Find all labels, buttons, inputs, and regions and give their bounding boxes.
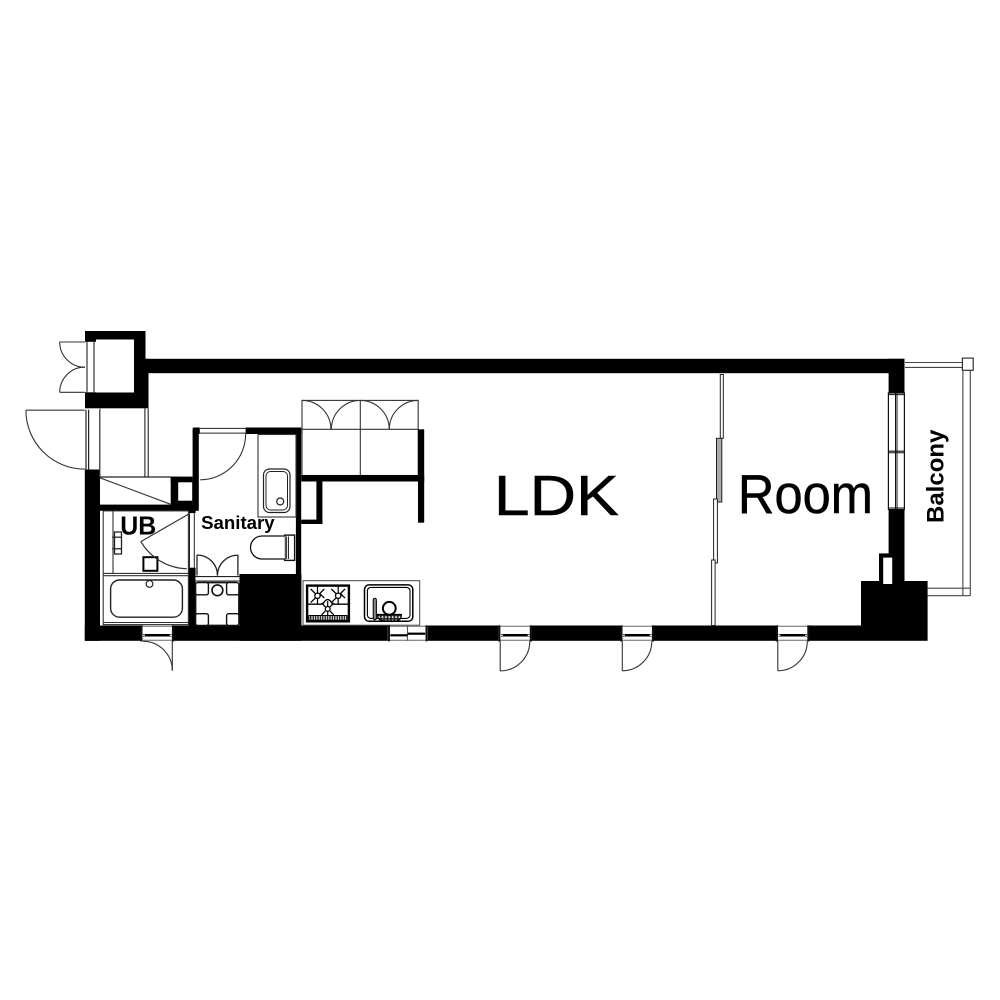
- svg-text:LDK: LDK: [494, 464, 619, 528]
- svg-text:UB: UB: [120, 510, 156, 540]
- svg-text:Room: Room: [738, 463, 873, 525]
- svg-text:Balcony: Balcony: [923, 429, 950, 523]
- svg-text:Sanitary: Sanitary: [201, 513, 275, 533]
